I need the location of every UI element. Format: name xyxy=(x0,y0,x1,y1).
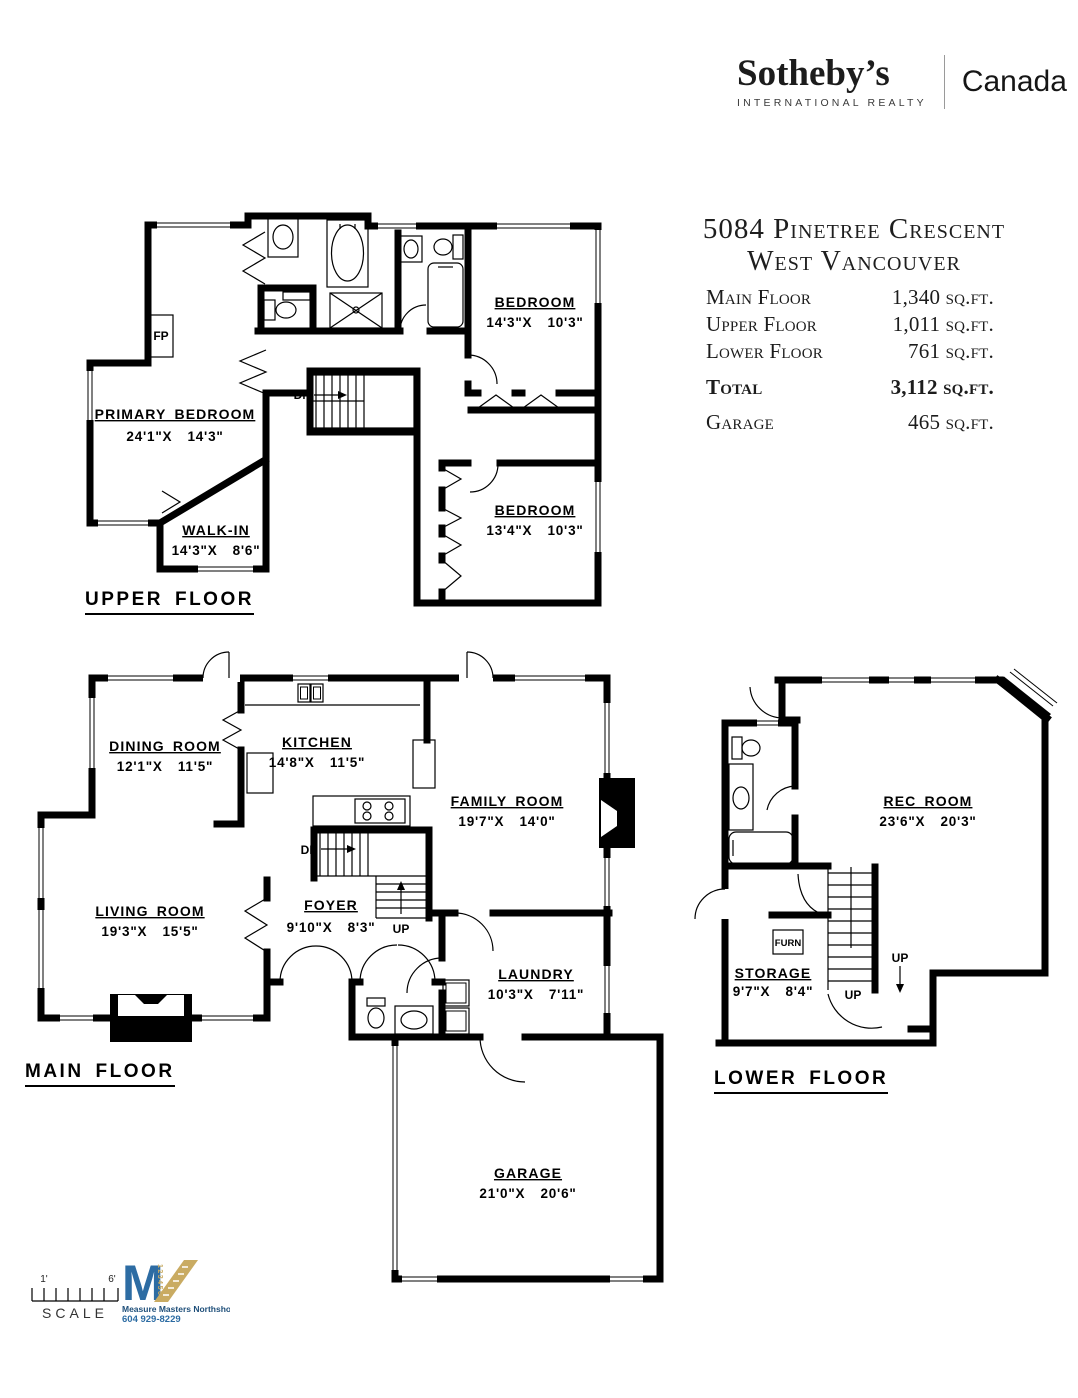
powder-toilet xyxy=(367,998,385,1028)
upper-floor-title: UPPER FLOOR xyxy=(85,589,254,615)
scale-tick-left: 1' xyxy=(40,1274,48,1285)
area-value: 1,011 xyxy=(893,312,940,336)
room-dims-dining: 12'1"X 11'5" xyxy=(117,759,213,774)
room-dims-garage: 21'0"X 20'6" xyxy=(479,1186,576,1201)
room-label-kitchen: KITCHEN xyxy=(282,734,352,750)
upper-stairs-down xyxy=(312,375,414,428)
stairs-up-label: UP xyxy=(393,922,410,936)
stairs-down-label: DN xyxy=(294,388,311,402)
room-label-rec: REC ROOM xyxy=(884,793,973,809)
room-dims-laundry: 10'3"X 7'11" xyxy=(488,987,584,1002)
patio-door-gap xyxy=(203,674,240,682)
area-label: Garage xyxy=(706,410,774,435)
room-label-bedroom2: BEDROOM xyxy=(495,502,576,518)
floorplan-page: Sotheby’s INTERNATIONAL REALTY Canada 50… xyxy=(0,0,1078,1398)
brand-logo: Sotheby’s INTERNATIONAL REALTY Canada xyxy=(737,55,1067,109)
room-label-bedroom1: BEDROOM xyxy=(495,294,576,310)
room-label-family: FAMILY ROOM xyxy=(451,793,564,809)
scale-label: SCALE xyxy=(42,1305,108,1321)
area-unit: sq.ft. xyxy=(946,339,994,363)
room-label-dining: DINING ROOM xyxy=(109,738,221,754)
bath2-bathtub xyxy=(428,263,463,327)
room-dims-primary-bedroom: 24'1"X 14'3" xyxy=(126,429,223,444)
area-label: Upper Floor xyxy=(706,312,817,337)
area-unit: sq.ft. xyxy=(943,375,994,399)
family-room-fireplace xyxy=(599,778,635,848)
lower-floor-title: LOWER FLOOR xyxy=(714,1068,888,1094)
room-dims-family: 19'7"X 14'0" xyxy=(458,814,555,829)
area-row-upper: Upper Floor 1,011 sq.ft. xyxy=(706,312,994,337)
main-floor-title: MAIN FLOOR xyxy=(25,1061,175,1087)
address-line2: West Vancouver xyxy=(638,246,1070,278)
kitchen-stove xyxy=(313,796,410,826)
powder-sink xyxy=(395,1006,433,1034)
area-value: 1,340 xyxy=(892,285,940,309)
furnace-label: FURN xyxy=(775,938,802,949)
ensuite-shower xyxy=(330,293,382,328)
surveyor-phone: 604 929-8229 xyxy=(122,1314,181,1324)
brand-wordmark: Sotheby’s INTERNATIONAL REALTY xyxy=(737,55,927,109)
living-room-fireplace xyxy=(110,994,192,1042)
brand-name: Sotheby’s xyxy=(737,55,927,92)
room-dims-living: 19'3"X 15'5" xyxy=(101,924,198,939)
mm-ruler-icon: 123456 xyxy=(154,1260,198,1302)
ensuite-sink xyxy=(268,218,298,257)
room-label-living: LIVING ROOM xyxy=(95,903,204,919)
address-line1: 5084 Pinetree Crescent xyxy=(638,213,1070,246)
area-label: Lower Floor xyxy=(706,339,823,364)
room-dims-walkin: 14'3"X 8'6" xyxy=(172,543,261,558)
room-dims-bedroom1: 14'3"X 10'3" xyxy=(486,315,583,330)
room-label-primary-bedroom: PRIMARY BEDROOM xyxy=(95,406,256,422)
area-unit: sq.ft. xyxy=(946,312,994,336)
area-value: 465 xyxy=(908,410,940,434)
garage-door xyxy=(391,1046,400,1270)
room-label-garage: GARAGE xyxy=(494,1165,562,1181)
scale-tick-right: 6' xyxy=(108,1274,116,1285)
area-unit: sq.ft. xyxy=(946,285,994,309)
lower-toilet xyxy=(732,737,760,759)
area-value: 3,112 xyxy=(891,375,938,399)
room-dims-foyer: 9'10"X 8'3" xyxy=(287,920,376,935)
brand-region: Canada xyxy=(962,65,1067,99)
main-floor-plan: DN UP DINING ROOM 12'1"X 11'5" KITCHEN 1… xyxy=(15,648,675,1338)
room-dims-kitchen: 14'8"X 11'5" xyxy=(269,755,365,770)
brand-subtitle: INTERNATIONAL REALTY xyxy=(737,97,927,109)
area-row-main: Main Floor 1,340 sq.ft. xyxy=(706,285,994,310)
lower-stairs xyxy=(798,867,904,993)
fireplace-label: FP xyxy=(153,329,168,343)
mm-ruler-numbers: 123456 xyxy=(156,1264,163,1296)
bath2-sink xyxy=(400,236,422,262)
measure-masters-logo: M 123456 Measure Masters Northshore 604 … xyxy=(120,1256,230,1324)
upper-floor-plan: FP DN PRIMARY BEDROOM 24'1"X 14'3" BEDRO… xyxy=(78,188,638,620)
surveyor-name: Measure Masters Northshore xyxy=(122,1304,230,1314)
lower-sink xyxy=(729,764,753,830)
room-label-foyer: FOYER xyxy=(304,897,358,913)
area-value: 761 xyxy=(908,339,940,363)
room-dims-bedroom2: 13'4"X 10'3" xyxy=(486,523,583,538)
lower-floor-plan: FURN UP UP REC ROOM 23'6"X 20'3" STORAGE… xyxy=(685,658,1075,1098)
room-dims-storage: 9'7"X 8'4" xyxy=(733,984,814,999)
area-unit: sq.ft. xyxy=(946,410,994,434)
bath2-toilet xyxy=(434,235,463,259)
room-dims-rec: 23'6"X 20'3" xyxy=(879,814,976,829)
stairs-up-label: UP xyxy=(845,988,862,1002)
room-label-walkin: WALK-IN xyxy=(182,522,250,538)
area-row-garage: Garage 465 sq.ft. xyxy=(706,410,994,435)
lower-bathtub xyxy=(729,832,793,864)
family-door-gap xyxy=(459,674,493,682)
ensuite-toilet xyxy=(264,292,310,320)
area-label: Main Floor xyxy=(706,285,811,310)
area-row-total: Total 3,112 sq.ft. xyxy=(706,375,994,400)
area-row-lower: Lower Floor 761 sq.ft. xyxy=(706,339,994,364)
area-label: Total xyxy=(706,375,762,400)
area-table: Main Floor 1,340 sq.ft. Upper Floor 1,01… xyxy=(706,285,994,437)
entry-up-label: UP xyxy=(892,951,909,965)
ensuite-bathtub xyxy=(327,220,368,287)
washer-dryer xyxy=(443,980,469,1034)
brand-divider xyxy=(944,55,945,109)
stairs-down-label: DN xyxy=(301,843,318,857)
room-label-laundry: LAUNDRY xyxy=(498,966,574,982)
kitchen-sink xyxy=(298,684,323,702)
room-label-storage: STORAGE xyxy=(735,965,812,981)
